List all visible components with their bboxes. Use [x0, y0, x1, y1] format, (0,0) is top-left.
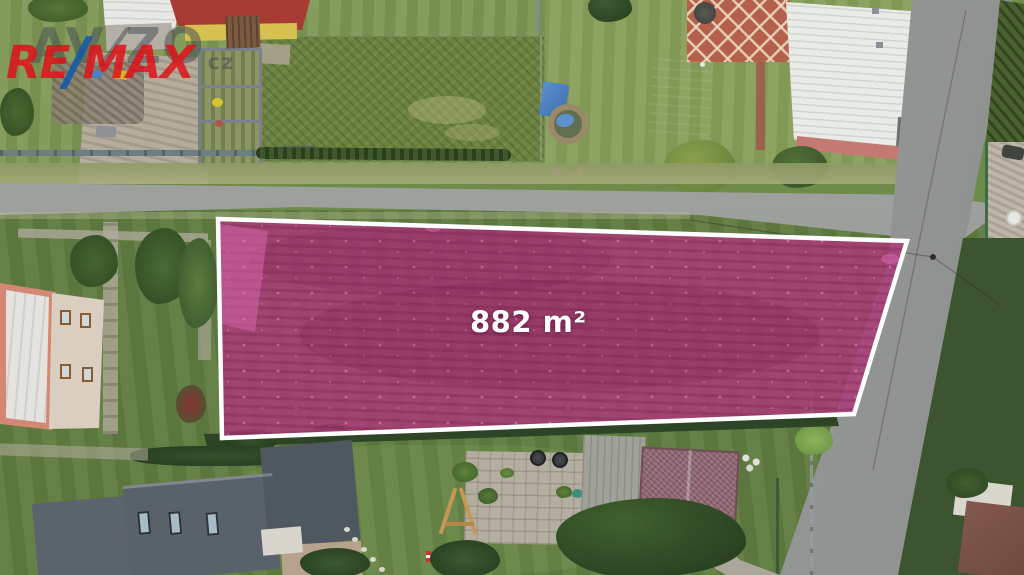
red-bush [176, 385, 206, 423]
greenhouse-bar [198, 85, 262, 88]
plot-area-label: 882 m² [470, 305, 610, 339]
house-roof [958, 501, 1024, 575]
garden-table [694, 2, 716, 24]
tree [556, 498, 746, 575]
bush [556, 486, 572, 498]
bush [946, 468, 988, 498]
tree [70, 235, 118, 287]
dry-patch [445, 124, 500, 141]
skylight [205, 512, 219, 536]
window [82, 367, 93, 382]
white-stones [738, 452, 764, 472]
fence [536, 0, 540, 34]
shed-vent [700, 62, 705, 67]
fence [985, 142, 988, 238]
stepping-stone [352, 537, 358, 542]
tree [300, 548, 370, 575]
round-pool [1006, 210, 1022, 226]
trailer [96, 125, 117, 137]
skylight [168, 511, 182, 535]
greenhouse-bar [198, 120, 262, 123]
dry-patch [408, 96, 486, 124]
stepping-stone [344, 527, 350, 532]
skylight [137, 511, 151, 535]
flower-patch [212, 98, 223, 107]
roof-vent [876, 42, 883, 48]
bush [478, 488, 498, 504]
road-shoulder [0, 212, 690, 219]
tree [795, 425, 833, 455]
fire-pit [552, 452, 568, 468]
blue-tarp [92, 70, 102, 78]
window [60, 364, 71, 379]
greenhouse [198, 48, 262, 166]
aerial-photo: 882 m² AV/ZOcz RE/MAX [0, 0, 1024, 575]
stepping-stone [361, 547, 367, 552]
house-wall [261, 526, 303, 555]
roof-vent [872, 8, 879, 14]
garden-wall [756, 62, 765, 150]
meadow [258, 36, 545, 162]
window [60, 310, 71, 325]
play-structure [446, 522, 474, 526]
hedge-row [256, 147, 511, 161]
tree [430, 540, 500, 575]
fire-pit [530, 450, 546, 466]
stepping-stone [370, 557, 376, 562]
gray-annex [106, 23, 173, 51]
flower-patch [215, 120, 223, 127]
roof-plane [32, 495, 139, 575]
window [80, 313, 91, 328]
bush [0, 88, 34, 136]
bush [500, 468, 514, 478]
blossom-tree [178, 238, 218, 328]
bush [452, 462, 478, 482]
road-shoulder [0, 163, 948, 184]
stepping-stone [379, 567, 385, 572]
pergola [225, 15, 260, 48]
fence [776, 478, 779, 575]
